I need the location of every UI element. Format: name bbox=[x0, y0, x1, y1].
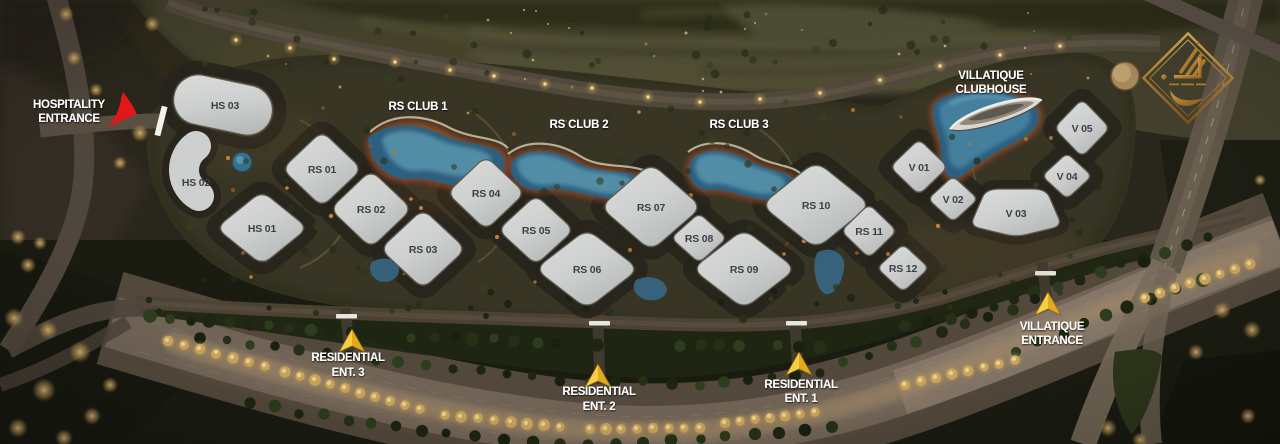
svg-text:ENT. 3: ENT. 3 bbox=[332, 367, 365, 379]
svg-text:RS CLUB 1: RS CLUB 1 bbox=[389, 101, 449, 113]
svg-text:HOSPITALITY: HOSPITALITY bbox=[33, 99, 106, 111]
svg-text:VILLATIQUE: VILLATIQUE bbox=[1020, 321, 1085, 333]
svg-text:VILLATIQUE: VILLATIQUE bbox=[958, 70, 1024, 82]
svg-text:RESIDENTIAL: RESIDENTIAL bbox=[562, 386, 636, 398]
svg-text:RESIDENTIAL: RESIDENTIAL bbox=[311, 352, 385, 364]
svg-text:ENTRANCE: ENTRANCE bbox=[1021, 335, 1083, 347]
svg-text:CLUBHOUSE: CLUBHOUSE bbox=[955, 84, 1027, 96]
svg-text:ENT. 1: ENT. 1 bbox=[785, 393, 819, 405]
svg-text:RESIDENTIAL: RESIDENTIAL bbox=[764, 379, 838, 391]
svg-text:RS CLUB 2: RS CLUB 2 bbox=[550, 119, 609, 131]
svg-text:ENTRANCE: ENTRANCE bbox=[38, 113, 100, 125]
svg-text:ENT. 2: ENT. 2 bbox=[583, 401, 616, 413]
svg-text:RS CLUB 3: RS CLUB 3 bbox=[710, 119, 769, 131]
